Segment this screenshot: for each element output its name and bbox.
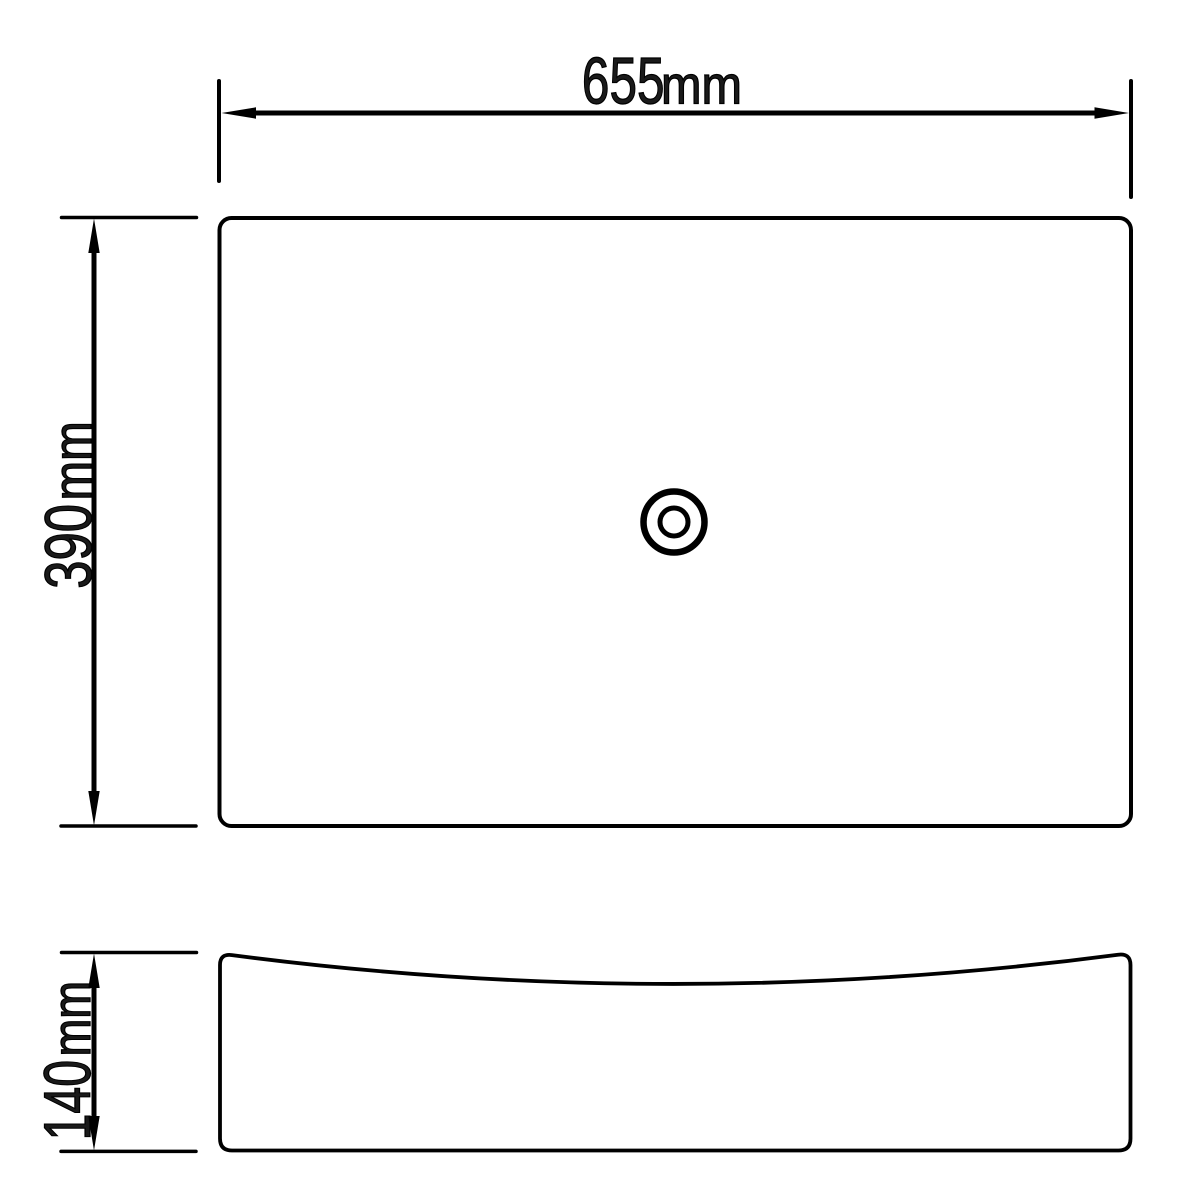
svg-text:655: 655: [582, 45, 665, 119]
svg-text:mm: mm: [661, 54, 742, 115]
